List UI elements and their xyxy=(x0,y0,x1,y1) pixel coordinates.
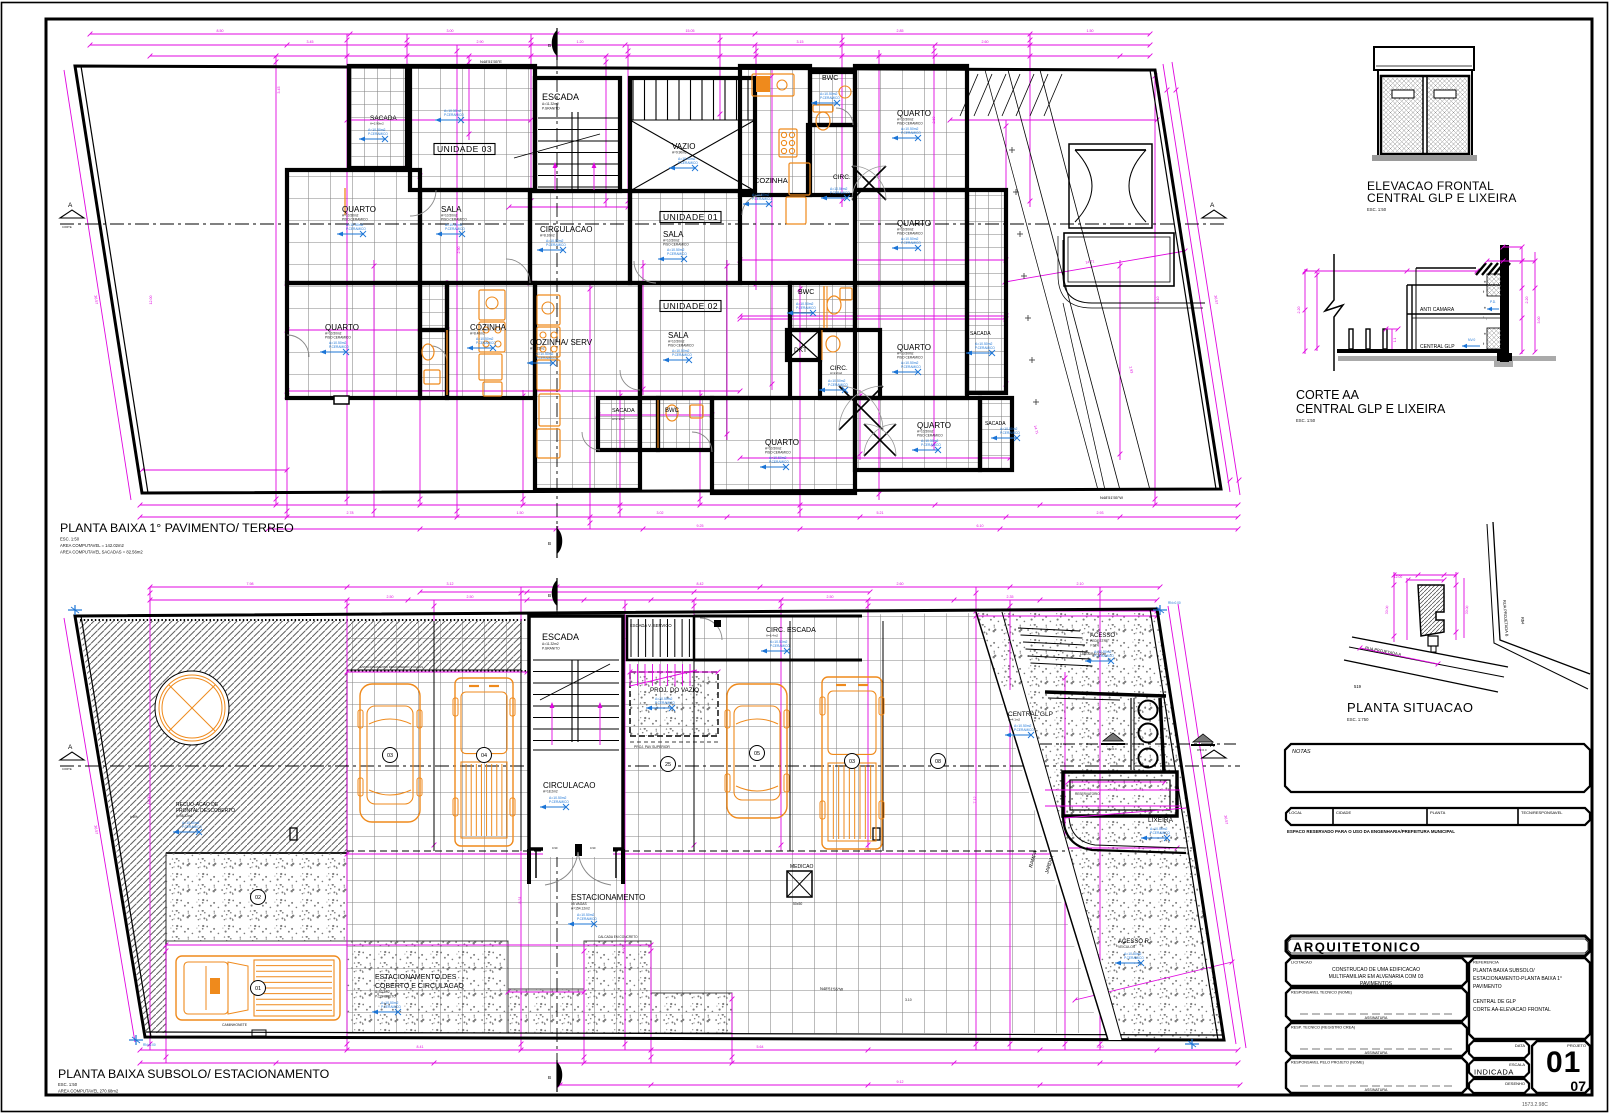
svg-text:03: 03 xyxy=(387,753,393,759)
svg-text:ESC. 1:50: ESC. 1:50 xyxy=(58,1082,78,1087)
svg-text:RESPONSAVEL TECNICO (NOME): RESPONSAVEL TECNICO (NOME) xyxy=(1291,991,1353,995)
svg-text:CORTE AA-ELEVACAO FRONTAL: CORTE AA-ELEVACAO FRONTAL xyxy=(1473,1007,1551,1013)
svg-text:A=9.90m2: A=9.90m2 xyxy=(672,151,687,155)
svg-text:CAMINHONETE: CAMINHONETE xyxy=(222,1023,248,1027)
svg-text:PISO CERAMICO: PISO CERAMICO xyxy=(897,232,923,236)
svg-text:P.CERAMICO: P.CERAMICO xyxy=(346,227,366,231)
svg-text:ESTACIONAMENTO: ESTACIONAMENTO xyxy=(571,893,645,902)
svg-text:12.00: 12.00 xyxy=(147,796,151,805)
svg-text:2.20: 2.20 xyxy=(1297,307,1301,314)
svg-text:5.21: 5.21 xyxy=(877,511,884,515)
svg-text:A=8.10m2: A=8.10m2 xyxy=(540,234,555,238)
svg-text:P.CERAMICO: P.CERAMICO xyxy=(1150,831,1170,835)
svg-text:ESCALA: ESCALA xyxy=(1509,1062,1525,1067)
svg-text:8.41: 8.41 xyxy=(417,1045,424,1049)
svg-text:P.CERAMICO: P.CERAMICO xyxy=(549,800,569,804)
svg-text:2.50: 2.50 xyxy=(467,595,474,599)
svg-text:P.CONCRETO: P.CONCRETO xyxy=(375,995,396,999)
svg-text:BWC: BWC xyxy=(798,289,814,296)
svg-text:P.CERAMICO: P.CERAMICO xyxy=(536,356,556,360)
svg-text:RN=0.0: RN=0.0 xyxy=(1197,748,1207,752)
svg-text:P.CERAMICO: P.CERAMICO xyxy=(770,644,790,648)
svg-text:A: A xyxy=(68,744,73,751)
svg-text:30.00: 30.00 xyxy=(1385,605,1390,614)
svg-text:RN=0.00: RN=0.00 xyxy=(1168,601,1181,605)
svg-text:CONSTRUCAO DE UMA EDIFICACAO: CONSTRUCAO DE UMA EDIFICACAO xyxy=(1332,967,1420,973)
svg-text:P.CERAMICO: P.CERAMICO xyxy=(381,1005,401,1009)
svg-text:5.64: 5.64 xyxy=(757,1045,764,1049)
svg-text:COZINHA: COZINHA xyxy=(754,176,788,185)
svg-text:P.CERAMICO: P.CERAMICO xyxy=(577,917,597,921)
svg-text:30.00: 30.00 xyxy=(1465,605,1470,614)
svg-text:P.CERAMICO: P.CERAMICO xyxy=(752,197,772,201)
svg-text:1.1: 1.1 xyxy=(1393,338,1397,343)
svg-text:UNIDADE 02: UNIDADE 02 xyxy=(663,301,718,311)
svg-text:3.00: 3.00 xyxy=(447,29,454,33)
svg-text:RESERVATORIO: RESERVATORIO xyxy=(1075,792,1100,796)
svg-text:PLANTA SITUACAO: PLANTA SITUACAO xyxy=(1347,700,1473,715)
svg-text:ASSINATURA: ASSINATURA xyxy=(1365,1088,1388,1092)
svg-text:B: B xyxy=(548,43,551,48)
svg-text:P.D.: P.D. xyxy=(1490,300,1496,304)
svg-text:PLANTA BAIXA 1° PAVIMENTO/ TER: PLANTA BAIXA 1° PAVIMENTO/ TERREO xyxy=(60,521,294,535)
svg-text:PAVIMENTOS: PAVIMENTOS xyxy=(1360,981,1393,987)
svg-text:2.90: 2.90 xyxy=(457,247,461,254)
svg-text:ESCADA: ESCADA xyxy=(542,92,579,102)
svg-text:2.60: 2.60 xyxy=(932,117,936,124)
svg-text:VEICULOS: VEICULOS xyxy=(1118,945,1136,949)
svg-text:RESP. TECNICO (REGISTRO CREA): RESP. TECNICO (REGISTRO CREA) xyxy=(1291,1026,1356,1030)
svg-text:3.02: 3.02 xyxy=(657,511,664,515)
svg-text:MEDICAO: MEDICAO xyxy=(790,864,813,870)
svg-text:2.85: 2.85 xyxy=(897,29,904,33)
svg-text:ESTACIONAMENTO DES: ESTACIONAMENTO DES xyxy=(375,974,457,981)
svg-text:SACADA: SACADA xyxy=(612,408,635,414)
svg-text:01: 01 xyxy=(255,986,261,992)
svg-text:UNIDADE 03: UNIDADE 03 xyxy=(437,144,492,154)
svg-text:ESCADA V. SERVICO: ESCADA V. SERVICO xyxy=(630,623,672,628)
svg-text:PISO CERAMICO: PISO CERAMICO xyxy=(897,122,923,126)
svg-text:TECN/RESPONSAVEL: TECN/RESPONSAVEL xyxy=(1521,810,1563,815)
svg-text:519: 519 xyxy=(1354,684,1362,689)
svg-text:ESCADA: ESCADA xyxy=(542,632,579,642)
svg-text:P.CERAMICO: P.CERAMICO xyxy=(1124,956,1144,960)
svg-text:CALCADA EM CONCRETO: CALCADA EM CONCRETO xyxy=(598,935,638,939)
svg-text:9.12: 9.12 xyxy=(897,1080,904,1084)
svg-text:12.00: 12.00 xyxy=(1394,575,1403,579)
svg-text:P.CERAMICO: P.CERAMICO xyxy=(830,191,850,195)
svg-text:A=2.1m2: A=2.1m2 xyxy=(612,417,624,421)
svg-text:P.CERAMICO: P.CERAMICO xyxy=(445,227,465,231)
svg-text:3.45: 3.45 xyxy=(277,87,281,94)
svg-text:A=18.2m2: A=18.2m2 xyxy=(543,790,558,794)
svg-text:P.GRANITO: P.GRANITO xyxy=(542,647,560,651)
svg-text:A=11.32m2: A=11.32m2 xyxy=(542,102,559,106)
svg-text:B: B xyxy=(548,541,551,546)
svg-text:ESC. 1:50: ESC. 1:50 xyxy=(60,537,80,542)
svg-text:6.10: 6.10 xyxy=(977,524,984,528)
svg-text:P.CERAMICO: P.CERAMICO xyxy=(901,241,921,245)
svg-text:03: 03 xyxy=(849,759,855,765)
svg-text:50x50: 50x50 xyxy=(793,902,802,906)
svg-text:PLANTA: PLANTA xyxy=(1430,810,1446,815)
svg-text:AREA COMPUTAVEL SACADAS =: AREA COMPUTAVEL SACADAS = 82.56m2 xyxy=(60,550,143,555)
svg-text:BWC: BWC xyxy=(822,75,838,82)
svg-text:02: 02 xyxy=(255,895,261,901)
svg-text:ARQUITETONICO: ARQUITETONICO xyxy=(1293,940,1421,955)
svg-text:04: 04 xyxy=(481,753,487,759)
svg-text:REFERENCIA: REFERENCIA xyxy=(1473,960,1499,965)
svg-text:N48'51'55''E: N48'51'55''E xyxy=(480,59,502,64)
svg-text:2.90: 2.90 xyxy=(477,40,484,44)
svg-text:P.CERAMICO: P.CERAMICO xyxy=(182,825,202,829)
svg-text:P.CERAMICO: P.CERAMICO xyxy=(672,353,692,357)
svg-text:8.50: 8.50 xyxy=(217,29,224,33)
svg-text:RN=0.0: RN=0.0 xyxy=(1107,747,1117,751)
svg-text:2.93: 2.93 xyxy=(1097,511,1104,515)
svg-text:3.00: 3.00 xyxy=(1537,317,1541,324)
svg-text:PEDESTRE: PEDESTRE xyxy=(1090,639,1109,643)
svg-text:i=8%: i=8% xyxy=(130,815,138,819)
svg-text:A: A xyxy=(68,202,73,209)
svg-text:3.60: 3.60 xyxy=(622,947,626,954)
svg-text:2.10: 2.10 xyxy=(1077,582,1084,586)
svg-text:MULTIFAMILIAR EM ALVENARIA COM: MULTIFAMILIAR EM ALVENARIA COM 03 xyxy=(1329,974,1424,980)
svg-text:15.05: 15.05 xyxy=(686,29,695,33)
svg-text:PISO CERAMICO: PISO CERAMICO xyxy=(668,344,694,348)
svg-text:ESTACIONAMENTO-PLANTA BAIXA 1°: ESTACIONAMENTO-PLANTA BAIXA 1° xyxy=(1473,976,1562,982)
svg-text:3.12: 3.12 xyxy=(447,582,454,586)
svg-text:2.35: 2.35 xyxy=(1007,595,1014,599)
svg-text:2.78: 2.78 xyxy=(347,511,354,515)
svg-text:ESC. 1:50: ESC. 1:50 xyxy=(1296,418,1316,423)
svg-text:ESC. 1:50: ESC. 1:50 xyxy=(1367,207,1387,212)
svg-text:08: 08 xyxy=(935,759,941,765)
svg-text:P.CERAMICO: P.CERAMICO xyxy=(975,346,995,350)
svg-text:05: 05 xyxy=(754,751,760,757)
svg-text:P.CERAMICO: P.CERAMICO xyxy=(655,701,675,705)
svg-text:7.98: 7.98 xyxy=(247,582,254,586)
svg-text:DESENHO: DESENHO xyxy=(1505,1081,1525,1086)
svg-text:PROJ. PAV SUPERIOR: PROJ. PAV SUPERIOR xyxy=(634,745,670,749)
svg-text:i=12%: i=12% xyxy=(1090,644,1099,648)
svg-text:RESPONSAVEL PELO PROJETO (NOME: RESPONSAVEL PELO PROJETO (NOME) xyxy=(1291,1061,1365,1065)
svg-text:A=52.3m2: A=52.3m2 xyxy=(375,990,390,994)
svg-text:NOTAS: NOTAS xyxy=(1292,749,1311,755)
svg-text:A=98.12m2: A=98.12m2 xyxy=(176,814,193,818)
svg-text:2.20: 2.20 xyxy=(1525,297,1529,304)
svg-text:AREA COMPUTAVEL 270.68m2: AREA COMPUTAVEL 270.68m2 xyxy=(58,1089,119,1094)
svg-text:25: 25 xyxy=(665,762,671,768)
svg-text:ASSINATURA: ASSINATURA xyxy=(1365,1016,1388,1020)
svg-text:PLANTA BAIXA SUBSOLO/: PLANTA BAIXA SUBSOLO/ xyxy=(1473,968,1535,974)
svg-text:ESC. 1:750: ESC. 1:750 xyxy=(1347,717,1369,722)
svg-text:PISO CERAMICO: PISO CERAMICO xyxy=(342,218,368,222)
svg-text:P.CERAMICO: P.CERAMICO xyxy=(921,443,941,447)
svg-text:P.CERAMICO: P.CERAMICO xyxy=(368,132,388,136)
svg-text:LIXEIRA: LIXEIRA xyxy=(1148,817,1174,824)
svg-text:CORTE AA: CORTE AA xyxy=(1296,388,1360,402)
svg-text:1.50: 1.50 xyxy=(1087,29,1094,33)
svg-text:P.GRANITO: P.GRANITO xyxy=(542,107,560,111)
svg-text:LOCAL: LOCAL xyxy=(1289,810,1303,815)
svg-text:P.CERAMICO: P.CERAMICO xyxy=(1000,431,1020,435)
svg-text:PISO CERAMICO: PISO CERAMICO xyxy=(765,451,791,455)
svg-text:UNIDADE 01: UNIDADE 01 xyxy=(663,212,718,222)
svg-text:AREA COMPUTAVEL = 142.02m: AREA COMPUTAVEL = 142.02m2 xyxy=(60,543,124,548)
svg-text:P.CERAMICO: P.CERAMICO xyxy=(329,345,349,349)
svg-text:PISO CERAMICO: PISO CERAMICO xyxy=(917,434,943,438)
svg-text:PLANTA BAIXA SUBSOLO/ ESTACION: PLANTA BAIXA SUBSOLO/ ESTACIONAMENTO xyxy=(58,1067,330,1081)
svg-text:P.CERAMICO: P.CERAMICO xyxy=(820,96,840,100)
svg-text:ASSINATURA: ASSINATURA xyxy=(1365,1051,1388,1055)
svg-text:P.CERAMICO: P.CERAMICO xyxy=(444,113,464,117)
svg-text:ESTACIONAMENTO DESCOBERTO 3 VA: ESTACIONAMENTO DESCOBERTO 3 VAGAS xyxy=(360,665,423,669)
svg-text:2.50: 2.50 xyxy=(387,595,394,599)
svg-text:P.CERAMICO: P.CERAMICO xyxy=(769,460,789,464)
svg-text:N48'51'55''W: N48'51'55''W xyxy=(1100,495,1123,500)
svg-text:2.50: 2.50 xyxy=(827,595,834,599)
svg-text:8.10: 8.10 xyxy=(1156,297,1160,304)
svg-text:ESPACO RESERVADO PARA O USO DA: ESPACO RESERVADO PARA O USO DA ENGENHARI… xyxy=(1287,829,1455,834)
svg-text:CENTRAL GLP E LIXEIRA: CENTRAL GLP E LIXEIRA xyxy=(1296,402,1446,416)
svg-text:P.CERAMICO: P.CERAMICO xyxy=(1014,728,1034,732)
svg-text:RN=0.00: RN=0.00 xyxy=(143,1043,156,1047)
svg-text:LARGURA=1.20m: LARGURA=1.20m xyxy=(1080,652,1106,656)
svg-text:CENTRAL DE GLP: CENTRAL DE GLP xyxy=(1473,999,1517,1005)
svg-text:3.45: 3.45 xyxy=(307,40,314,44)
svg-text:A=6.4m2: A=6.4m2 xyxy=(766,634,778,638)
svg-text:05 VAGAS: 05 VAGAS xyxy=(571,902,587,906)
svg-text:PISO CERAMICO: PISO CERAMICO xyxy=(325,336,351,340)
svg-text:R$4: R$4 xyxy=(1520,617,1526,625)
svg-text:CORTE: CORTE xyxy=(62,225,72,229)
svg-text:BWC: BWC xyxy=(665,408,680,414)
svg-text:0.90: 0.90 xyxy=(552,846,558,850)
svg-text:PROJ. DO VAZIO: PROJ. DO VAZIO xyxy=(650,687,699,694)
svg-text:A=4.1m2: A=4.1m2 xyxy=(1008,718,1020,722)
svg-text:CORTE: CORTE xyxy=(62,767,72,771)
svg-text:LICITACAO: LICITACAO xyxy=(1291,960,1312,965)
svg-text:COBERTO E CIRCULACAO: COBERTO E CIRCULACAO xyxy=(375,983,464,990)
svg-text:1.20: 1.20 xyxy=(577,40,584,44)
svg-text:DATA: DATA xyxy=(1515,1043,1525,1048)
svg-text:P.CERAMICO: P.CERAMICO xyxy=(901,131,921,135)
svg-text:CENTRAL GLP: CENTRAL GLP xyxy=(1420,344,1455,350)
svg-text:12.00: 12.00 xyxy=(149,296,153,305)
svg-text:A=9.15m2: A=9.15m2 xyxy=(530,347,545,351)
svg-text:NV.0: NV.0 xyxy=(1468,338,1475,342)
svg-text:8.42: 8.42 xyxy=(697,582,704,586)
svg-text:0.90: 0.90 xyxy=(590,846,596,850)
svg-text:CIDADE: CIDADE xyxy=(1336,810,1351,815)
svg-text:P.CERAMICO: P.CERAMICO xyxy=(901,365,921,369)
svg-text:1.50: 1.50 xyxy=(517,511,524,515)
svg-text:INDICADA: INDICADA xyxy=(1474,1068,1514,1077)
svg-text:CENTRAL GLP E LIXEIRA: CENTRAL GLP E LIXEIRA xyxy=(1367,191,1517,205)
svg-text:A=8.40m2: A=8.40m2 xyxy=(470,332,485,336)
svg-text:SACADA: SACADA xyxy=(970,331,991,337)
svg-text:ANTI CAMARA: ANTI CAMARA xyxy=(1420,307,1455,313)
svg-text:9.25: 9.25 xyxy=(697,524,704,528)
svg-text:2.60: 2.60 xyxy=(897,582,904,586)
svg-text:8.31: 8.31 xyxy=(518,897,522,904)
svg-text:PISO CERAMICO: PISO CERAMICO xyxy=(897,356,923,360)
svg-text:A: A xyxy=(1210,202,1215,209)
svg-text:07: 07 xyxy=(1570,1078,1586,1094)
svg-text:2.60: 2.60 xyxy=(982,40,989,44)
svg-text:7.12: 7.12 xyxy=(973,797,977,804)
svg-text:PISO CERAMICO: PISO CERAMICO xyxy=(441,218,467,222)
svg-text:B: B xyxy=(548,593,551,598)
svg-text:A=11.32m2: A=11.32m2 xyxy=(542,642,559,646)
svg-text:P.CERAMICO: P.CERAMICO xyxy=(828,383,848,387)
svg-text:N48'51'55''W: N48'51'55''W xyxy=(820,986,843,992)
svg-text:P.CERAMICO: P.CERAMICO xyxy=(796,306,816,310)
svg-text:CIRC.: CIRC. xyxy=(833,174,851,181)
svg-text:A=154.12m2: A=154.12m2 xyxy=(571,907,590,911)
svg-text:P.CERAMICO: P.CERAMICO xyxy=(546,243,566,247)
svg-text:P.CERAMICO: P.CERAMICO xyxy=(667,252,687,256)
svg-text:1573.2.98C: 1573.2.98C xyxy=(1522,1102,1548,1108)
svg-text:P.CERAMICO: P.CERAMICO xyxy=(476,341,496,345)
svg-text:3.10: 3.10 xyxy=(905,998,912,1002)
svg-text:A=2.2m2: A=2.2m2 xyxy=(830,371,842,375)
svg-text:3.15: 3.15 xyxy=(797,40,804,44)
svg-text:01: 01 xyxy=(1546,1046,1581,1079)
svg-text:PAVIMENTO: PAVIMENTO xyxy=(1473,984,1502,990)
svg-text:PISO CERAMICO: PISO CERAMICO xyxy=(663,243,689,247)
svg-text:B: B xyxy=(548,1075,551,1080)
svg-text:DKT: DKT xyxy=(794,347,807,354)
svg-text:P.CERAMICO: P.CERAMICO xyxy=(678,161,698,165)
svg-text:A=2.90m2: A=2.90m2 xyxy=(370,122,384,126)
